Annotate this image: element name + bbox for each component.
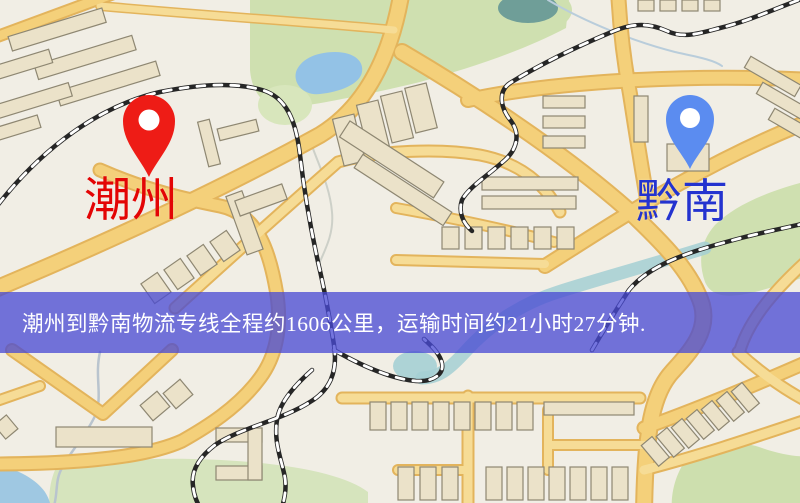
route-info-banner: 潮州到黔南物流专线全程约1606公里，运输时间约21小时27分钟. <box>0 292 800 353</box>
destination-label: 黔南 <box>636 179 728 225</box>
map-canvas[interactable]: 潮州 黔南 潮州到黔南物流专线全程约1606公里，运输时间约21小时27分钟. <box>0 0 800 503</box>
route-info-text: 潮州到黔南物流专线全程约1606公里，运输时间约21小时27分钟. <box>0 307 646 338</box>
origin-pin-icon[interactable] <box>123 95 175 177</box>
map-graphics <box>0 0 800 503</box>
origin-label: 潮州 <box>84 178 178 225</box>
